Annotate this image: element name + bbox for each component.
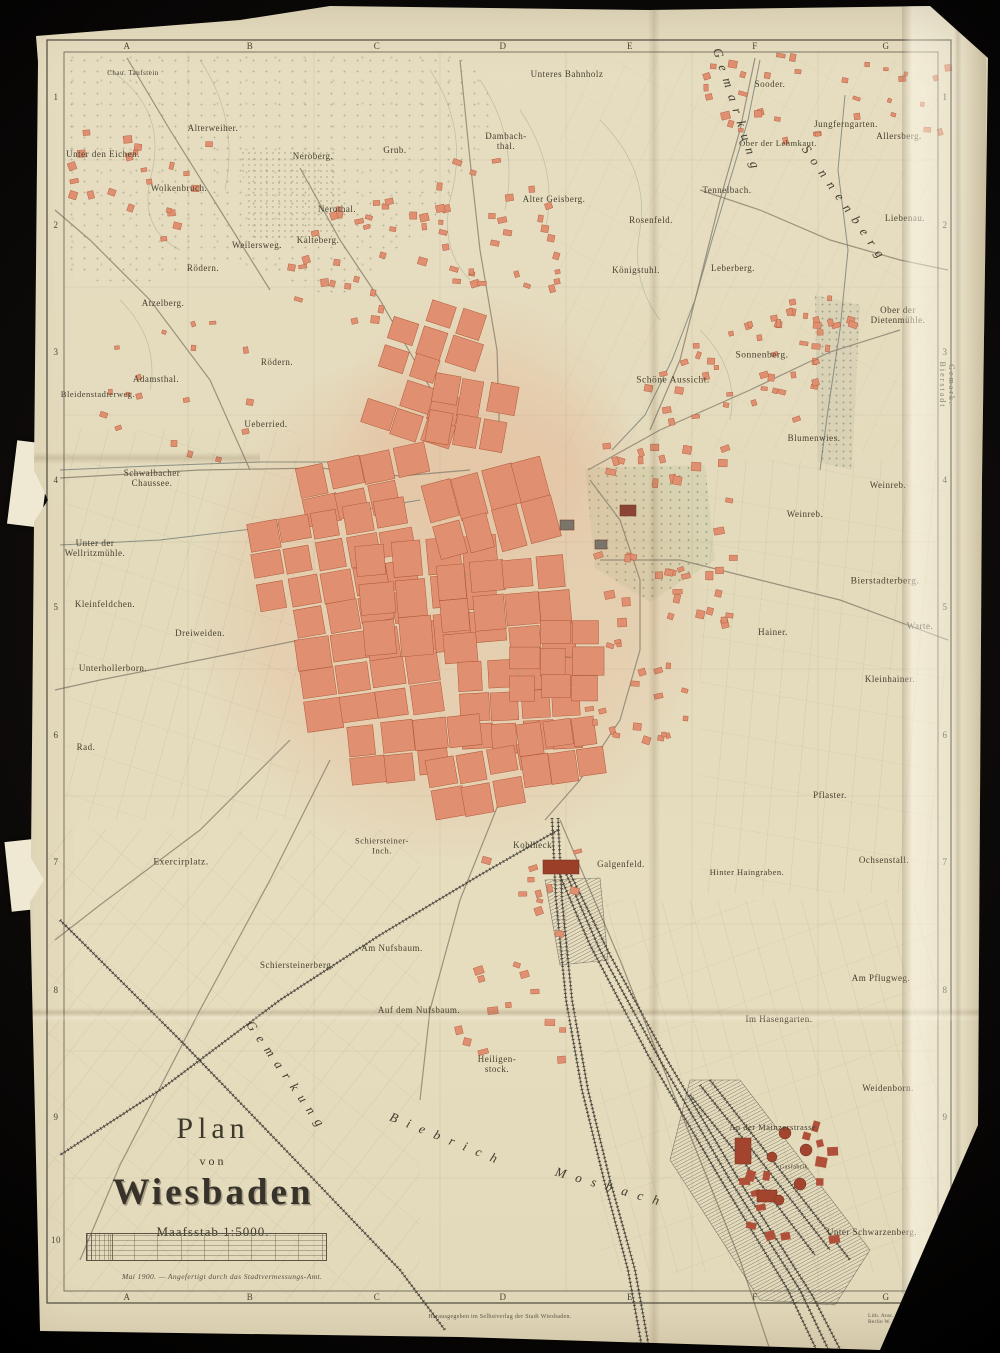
map-title-plan: Plan <box>88 1112 338 1146</box>
grid-col-G-bottom: G <box>883 1292 890 1302</box>
grid-row-4-left: 4 <box>54 475 59 485</box>
grid-row-6-right: 6 <box>943 730 948 740</box>
grid-col-E-top: E <box>627 41 633 51</box>
grid-col-A-top: A <box>124 41 131 51</box>
grid-row-7-left: 7 <box>54 857 59 867</box>
grid-col-A-bottom: A <box>124 1292 131 1302</box>
map-production-note: Mai 1900. — Angefertigt durch das Stadtv… <box>122 1272 352 1281</box>
grid-col-B-bottom: B <box>247 1292 254 1302</box>
map-title-city: Wiesbaden <box>88 1171 338 1214</box>
grid-col-D-top: D <box>500 41 507 51</box>
grid-col-G-top: G <box>883 41 890 51</box>
grid-row-2-right: 2 <box>943 220 948 230</box>
grid-col-E-bottom: E <box>627 1292 633 1302</box>
photo-backdrop: Chau. TaufsteinAlterweiher.Unter den Eic… <box>0 0 1000 1353</box>
grid-row-1-right: 1 <box>943 92 948 102</box>
grid-col-B-top: B <box>247 41 254 51</box>
grid-row-3-right: 3 <box>943 347 948 357</box>
grid-col-C-bottom: C <box>374 1292 381 1302</box>
grid-row-4-right: 4 <box>943 475 948 485</box>
grid-col-C-top: C <box>374 41 381 51</box>
scale-bar <box>86 1233 327 1261</box>
grid-row-10-left: 10 <box>51 1235 61 1245</box>
grid-col-D-bottom: D <box>500 1292 507 1302</box>
grid-col-F-bottom: F <box>752 1292 758 1302</box>
map-title-von: von <box>88 1154 338 1169</box>
grid-row-10-right: 10 <box>940 1235 950 1245</box>
grid-row-8-left: 8 <box>54 985 59 995</box>
grid-row-6-left: 6 <box>54 730 59 740</box>
publisher-imprint: Herausgegeben im Selbstverlag der Stadt … <box>428 1314 571 1320</box>
grid-row-7-right: 7 <box>943 857 948 867</box>
title-block: Plan von Wiesbaden Maafsstab 1:5000. <box>88 1112 338 1240</box>
grid-row-5-right: 5 <box>943 602 948 612</box>
grid-row-1-left: 1 <box>54 92 59 102</box>
grid-row-3-left: 3 <box>54 347 59 357</box>
grid-row-9-right: 9 <box>943 1112 948 1122</box>
map-paper: Chau. TaufsteinAlterweiher.Unter den Eic… <box>0 0 1000 1353</box>
lithographer-imprint: Lith. Anst. v. Bogdan Gisevius, Berlin W… <box>868 1313 956 1325</box>
grid-col-F-top: F <box>752 41 758 51</box>
grid-row-5-left: 5 <box>54 602 59 612</box>
grid-row-2-left: 2 <box>54 220 59 230</box>
grid-row-9-left: 9 <box>54 1112 59 1122</box>
grid-row-8-right: 8 <box>943 985 948 995</box>
